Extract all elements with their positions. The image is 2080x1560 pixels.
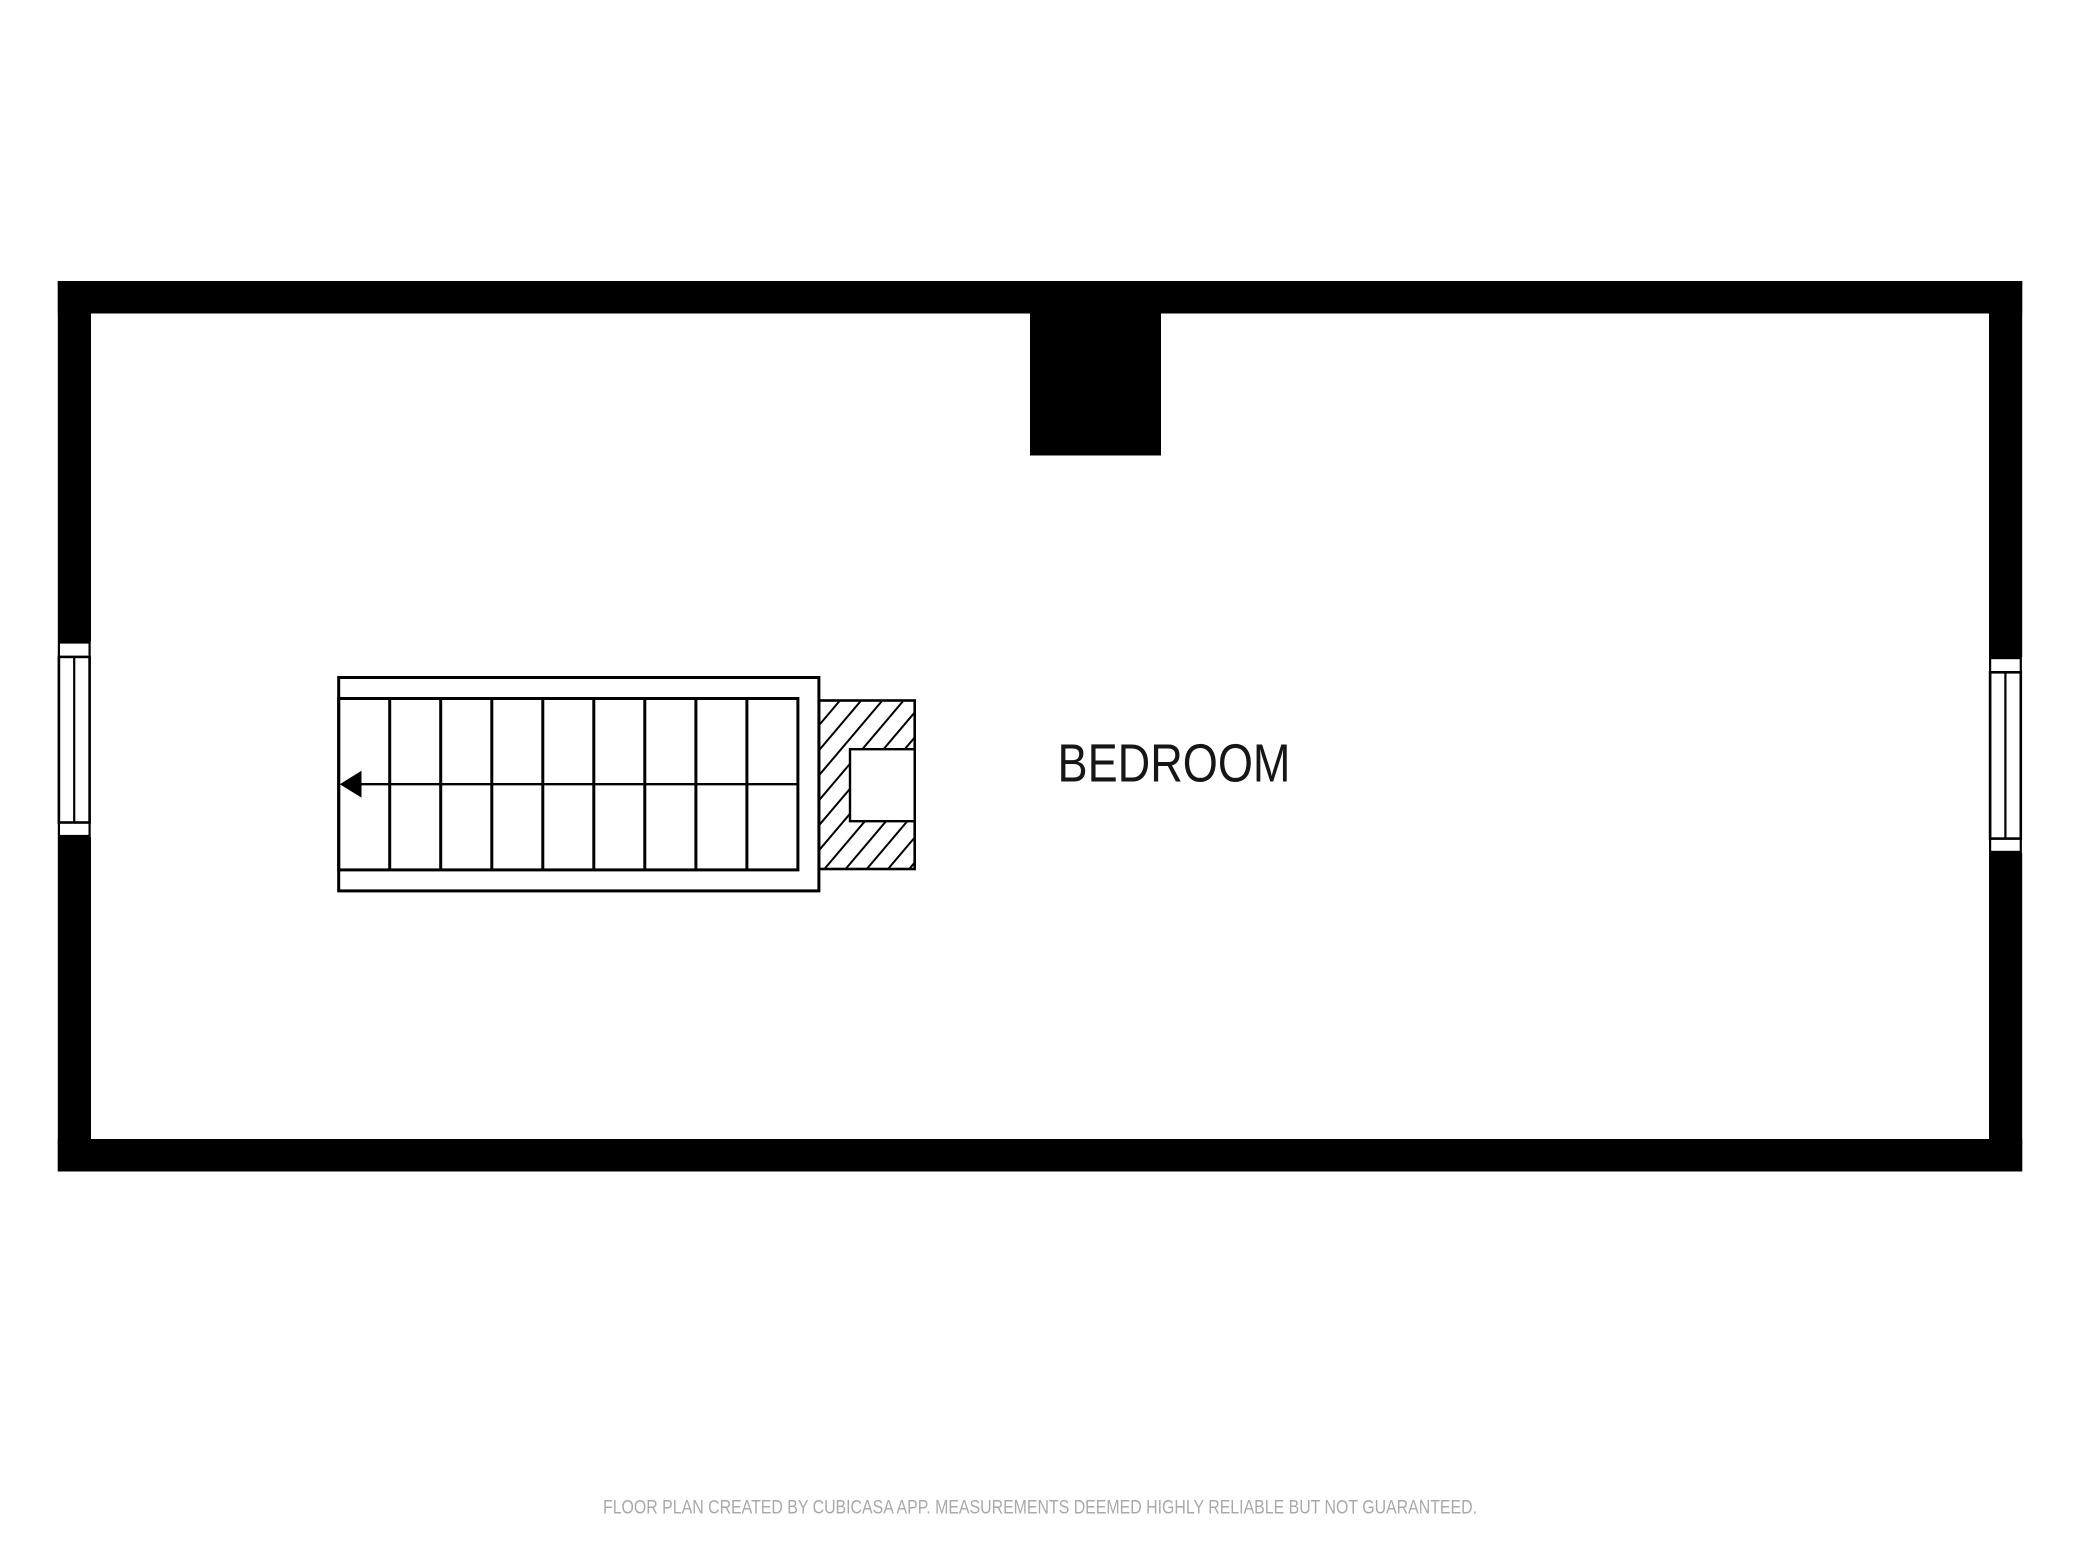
svg-text:FLOOR PLAN CREATED BY CUBICASA: FLOOR PLAN CREATED BY CUBICASA APP. MEAS… bbox=[603, 1498, 1477, 1519]
svg-text:BEDROOM: BEDROOM bbox=[1058, 734, 1291, 794]
